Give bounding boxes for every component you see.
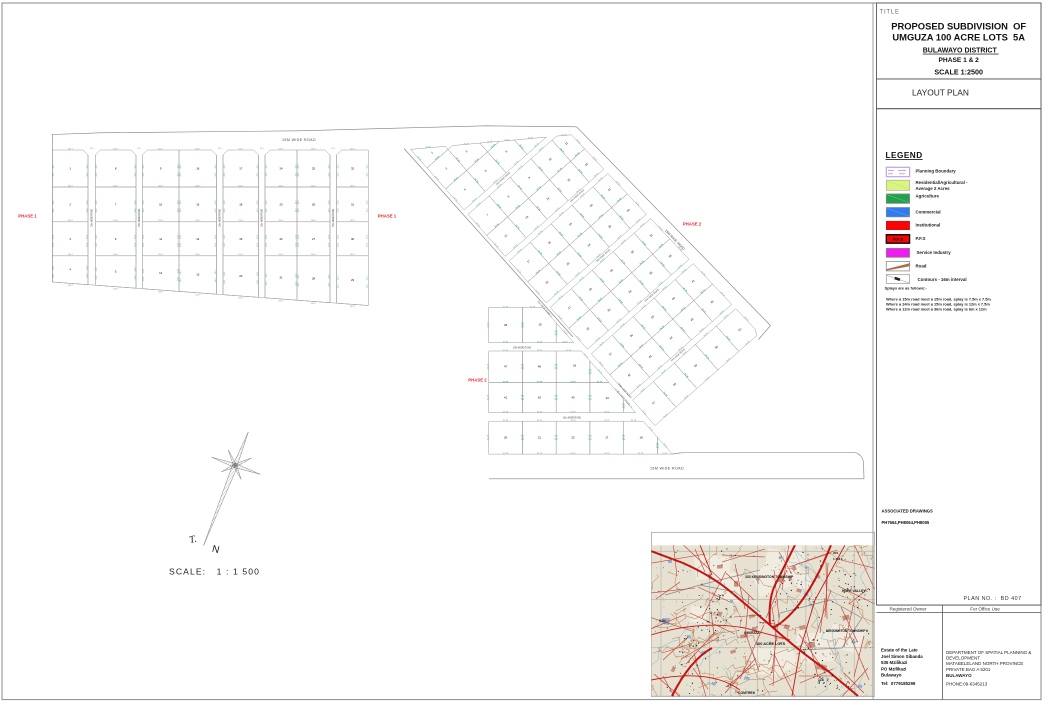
svg-text:33.78: 33.78 <box>662 453 668 455</box>
svg-text:160.7: 160.7 <box>278 148 284 150</box>
svg-text:33.78: 33.78 <box>530 306 536 308</box>
svg-text:33.78: 33.78 <box>522 434 524 440</box>
svg-text:33.78: 33.78 <box>562 342 568 344</box>
svg-text:100 ACRE LOTS: 100 ACRE LOTS <box>756 642 786 646</box>
svg-text:UMGUZA 100 ACRE LOTS 5A: UMGUZA 100 ACRE LOTS 5A <box>892 32 1025 43</box>
svg-text:33.78: 33.78 <box>570 453 576 455</box>
svg-text:33.78: 33.78 <box>537 350 543 352</box>
svg-text:DEVELOPMENT: DEVELOPMENT <box>946 656 980 661</box>
svg-text:33.78: 33.78 <box>589 434 591 440</box>
svg-text:33.78: 33.78 <box>638 453 644 455</box>
svg-text:160.7: 160.7 <box>158 185 164 187</box>
svg-text:29: 29 <box>351 278 355 282</box>
svg-text:160.7: 160.7 <box>238 298 244 300</box>
svg-text:Commercial: Commercial <box>916 209 941 214</box>
svg-text:15: 15 <box>196 202 200 206</box>
svg-text:160.7: 160.7 <box>113 220 119 222</box>
svg-text:15m WIDE ROAD: 15m WIDE ROAD <box>261 208 264 227</box>
svg-text:28: 28 <box>312 277 316 281</box>
svg-text:33.78: 33.78 <box>503 412 509 414</box>
svg-text:33.78: 33.78 <box>522 394 524 400</box>
svg-text:535 Mzilikazi: 535 Mzilikazi <box>881 660 907 665</box>
svg-text:Joel Simon Sibanda: Joel Simon Sibanda <box>881 654 923 659</box>
svg-text:160.7: 160.7 <box>195 254 201 256</box>
svg-text:19: 19 <box>239 237 243 241</box>
svg-text:14: 14 <box>196 237 200 241</box>
svg-text:10: 10 <box>159 202 163 206</box>
svg-text:33.78: 33.78 <box>566 350 572 352</box>
svg-text:33.78: 33.78 <box>589 368 591 374</box>
svg-text:11: 11 <box>159 237 162 241</box>
svg-text:PHASE 1: PHASE 1 <box>18 213 37 218</box>
svg-text:33.78: 33.78 <box>503 350 509 352</box>
svg-text:160.7: 160.7 <box>278 301 284 303</box>
svg-text:33.78: 33.78 <box>555 434 557 440</box>
svg-text:33.78: 33.78 <box>537 420 543 422</box>
svg-text:160.7: 160.7 <box>158 148 164 150</box>
svg-text:Tel: 0779185299: Tel: 0779185299 <box>881 681 916 686</box>
svg-text:KENSINGTON TOWNSHIP 6: KENSINGTON TOWNSHIP 6 <box>826 629 868 633</box>
svg-text:33.78: 33.78 <box>589 394 591 400</box>
svg-text:24: 24 <box>279 167 283 171</box>
svg-text:Where a 12m road meet a 36m ro: Where a 12m road meet a 36m road, splay … <box>886 306 987 311</box>
svg-text:22: 22 <box>571 436 575 440</box>
svg-text:33.78: 33.78 <box>503 306 509 308</box>
svg-text:22: 22 <box>279 237 283 241</box>
svg-text:160.7: 160.7 <box>238 220 244 222</box>
svg-text:PHASE 2: PHASE 2 <box>683 222 702 227</box>
svg-text:27: 27 <box>312 237 316 241</box>
svg-text:16: 16 <box>573 364 577 368</box>
svg-text:TITLE: TITLE <box>880 10 900 16</box>
svg-text:33.78: 33.78 <box>623 434 625 440</box>
svg-text:Residential/Agricultural -: Residential/Agricultural - <box>916 180 969 185</box>
svg-text:160.7: 160.7 <box>278 185 284 187</box>
svg-text:Institutional: Institutional <box>916 223 941 228</box>
svg-text:43: 43 <box>571 396 575 400</box>
svg-text:16: 16 <box>196 167 200 171</box>
svg-text:160.7: 160.7 <box>113 185 119 187</box>
svg-text:33.78: 33.78 <box>488 434 490 440</box>
svg-text:23: 23 <box>279 202 283 206</box>
svg-text:160.7: 160.7 <box>68 285 74 287</box>
svg-text:PHASE 1 & 2: PHASE 1 & 2 <box>939 57 980 64</box>
svg-text:160.7: 160.7 <box>350 254 356 256</box>
svg-text:Splays are as follows:-: Splays are as follows:- <box>885 286 928 291</box>
svg-text:160.7: 160.7 <box>350 185 356 187</box>
svg-text:33.78: 33.78 <box>503 453 509 455</box>
svg-text:42: 42 <box>538 396 542 400</box>
svg-text:25: 25 <box>312 167 316 171</box>
svg-text:30: 30 <box>351 237 355 241</box>
svg-text:P.F.S: P.F.S <box>893 237 903 242</box>
svg-text:Average 2 Acres: Average 2 Acres <box>916 186 951 191</box>
svg-text:160.7: 160.7 <box>158 254 164 256</box>
svg-text:BULAWAYO: BULAWAYO <box>946 673 972 678</box>
svg-text:33.78: 33.78 <box>604 453 610 455</box>
svg-text:160.7: 160.7 <box>311 148 317 150</box>
svg-text:160.7: 160.7 <box>158 220 164 222</box>
svg-text:33.78: 33.78 <box>488 322 490 328</box>
svg-text:160.7: 160.7 <box>238 148 244 150</box>
svg-text:160.7: 160.7 <box>311 254 317 256</box>
svg-text:PH7664,PH8064,PH8065: PH7664,PH8064,PH8065 <box>882 520 930 525</box>
svg-text:MATABELELAND NORTH PROVINCE: MATABELELAND NORTH PROVINCE <box>946 661 1023 666</box>
svg-text:19: 19 <box>538 323 542 327</box>
svg-text:15M WIDE ROAD: 15M WIDE ROAD <box>282 138 316 142</box>
svg-text:160.7: 160.7 <box>278 220 284 222</box>
svg-text:PLAN NO. : BD 407: PLAN NO. : BD 407 <box>964 596 1022 602</box>
svg-text:33.78: 33.78 <box>537 381 543 383</box>
svg-text:Contours - 16m interval: Contours - 16m interval <box>918 277 967 282</box>
svg-text:160.7: 160.7 <box>113 254 119 256</box>
svg-text:160.7: 160.7 <box>68 185 74 187</box>
svg-text:160.7: 160.7 <box>113 288 119 290</box>
svg-text:333 KENSINGTON TOWNSHIP: 333 KENSINGTON TOWNSHIP <box>745 575 794 579</box>
svg-text:26/1: 26/1 <box>833 551 839 555</box>
svg-text:160.7: 160.7 <box>311 303 317 305</box>
svg-text:PHASE 2: PHASE 2 <box>468 378 487 383</box>
svg-text:160.7: 160.7 <box>311 185 317 187</box>
svg-text:160.7: 160.7 <box>195 148 201 150</box>
svg-text:12A: 12A <box>818 678 825 682</box>
svg-text:21: 21 <box>538 436 542 440</box>
svg-text:160.7: 160.7 <box>195 294 201 296</box>
svg-text:For Office Use: For Office Use <box>970 607 1000 612</box>
svg-text:33.78: 33.78 <box>570 412 576 414</box>
svg-text:BULAWAYO DISTRICT: BULAWAYO DISTRICT <box>923 48 999 55</box>
svg-text:15m WIDE ROAD: 15m WIDE ROAD <box>219 208 222 227</box>
svg-text:SCALE 1:2500: SCALE 1:2500 <box>934 68 983 77</box>
svg-text:160.7: 160.7 <box>278 254 284 256</box>
svg-text:PROPOSED SUBDIVISION OF: PROPOSED SUBDIVISION OF <box>891 21 1026 32</box>
svg-text:Service Industry: Service Industry <box>917 250 952 255</box>
svg-text:160.7: 160.7 <box>158 292 164 294</box>
svg-text:12M WIDE ROAD: 12M WIDE ROAD <box>513 346 532 349</box>
svg-text:33.78: 33.78 <box>597 381 603 383</box>
svg-text:18: 18 <box>640 436 644 440</box>
svg-text:33.78: 33.78 <box>503 381 509 383</box>
svg-text:ASSOCIATED DRAWINGS: ASSOCIATED DRAWINGS <box>882 509 934 514</box>
svg-text:44: 44 <box>606 396 610 400</box>
svg-text:PRIVATE BAG A 5201: PRIVATE BAG A 5201 <box>946 667 991 672</box>
svg-text:1-438.8: 1-438.8 <box>833 557 843 561</box>
svg-text:COMTREK: COMTREK <box>738 691 756 695</box>
svg-text:17: 17 <box>605 436 609 440</box>
svg-text:160.7: 160.7 <box>311 220 317 222</box>
svg-text:33.78: 33.78 <box>604 412 610 414</box>
svg-text:33.78: 33.78 <box>503 420 509 422</box>
svg-text:HOPE VALLEY: HOPE VALLEY <box>842 589 866 593</box>
svg-text:33.78: 33.78 <box>537 412 543 414</box>
svg-text:33.78: 33.78 <box>623 402 625 408</box>
svg-text:160.7: 160.7 <box>238 254 244 256</box>
svg-text:33.78: 33.78 <box>555 363 557 369</box>
svg-text:26: 26 <box>312 202 316 206</box>
svg-text:LEGEND: LEGEND <box>886 151 923 160</box>
svg-text:160.7: 160.7 <box>195 220 201 222</box>
svg-text:33.78: 33.78 <box>656 442 658 448</box>
svg-text:PO Mzilikazi: PO Mzilikazi <box>881 666 906 671</box>
svg-text:33.78: 33.78 <box>604 420 610 422</box>
svg-text:21: 21 <box>279 275 283 279</box>
svg-text:160.7: 160.7 <box>238 185 244 187</box>
svg-text:15m WIDE ROAD: 15m WIDE ROAD <box>332 208 335 227</box>
svg-text:KZN: KZN <box>659 619 666 623</box>
svg-text:Planning Boundary: Planning Boundary <box>916 168 957 173</box>
svg-text:PHONE:09-6345213: PHONE:09-6345213 <box>946 681 988 686</box>
svg-text:160.7: 160.7 <box>350 220 356 222</box>
svg-text:33.78: 33.78 <box>522 322 524 328</box>
svg-text:SCALE: 1 : 1 500: SCALE: 1 : 1 500 <box>169 567 260 577</box>
svg-text:160.7: 160.7 <box>68 220 74 222</box>
svg-text:160.7: 160.7 <box>113 148 119 150</box>
svg-text:45: 45 <box>504 323 508 327</box>
svg-text:20: 20 <box>239 274 243 278</box>
svg-text:33.78: 33.78 <box>555 329 557 335</box>
svg-text:PHASE 1: PHASE 1 <box>378 213 397 218</box>
svg-text:32: 32 <box>351 167 355 171</box>
svg-text:31: 31 <box>351 202 355 206</box>
svg-text:33.78: 33.78 <box>570 420 576 422</box>
svg-text:33.78: 33.78 <box>537 342 543 344</box>
svg-text:Agriculture: Agriculture <box>916 194 940 199</box>
svg-text:33.78: 33.78 <box>631 420 637 422</box>
svg-text:160.7: 160.7 <box>68 148 74 150</box>
svg-text:Estate of the Late: Estate of the Late <box>881 648 918 653</box>
svg-text:160.7: 160.7 <box>68 254 74 256</box>
svg-text:UMGUZA: UMGUZA <box>744 631 760 635</box>
svg-text:DEPARTMENT OF SPATIAL PLANNING: DEPARTMENT OF SPATIAL PLANNING & <box>946 650 1031 655</box>
svg-text:160.7: 160.7 <box>350 148 356 150</box>
svg-text:12: 12 <box>159 271 163 275</box>
svg-text:Road: Road <box>916 264 927 269</box>
svg-text:15m WIDE ROAD: 15m WIDE ROAD <box>563 417 582 420</box>
svg-text:46: 46 <box>538 365 542 369</box>
svg-text:33.78: 33.78 <box>503 342 509 344</box>
svg-text:LAYOUT PLAN: LAYOUT PLAN <box>912 88 969 98</box>
svg-text:13: 13 <box>196 272 200 276</box>
svg-text:33.78: 33.78 <box>488 394 490 400</box>
svg-text:17: 17 <box>239 167 243 171</box>
svg-text:33.78: 33.78 <box>537 453 543 455</box>
svg-text:160.7: 160.7 <box>350 306 356 308</box>
svg-text:15m WIDE ROAD: 15m WIDE ROAD <box>91 208 94 227</box>
svg-text:33.78: 33.78 <box>522 363 524 369</box>
svg-text:18: 18 <box>239 202 243 206</box>
svg-text:15M WIDE ROAD: 15M WIDE ROAD <box>650 466 684 470</box>
svg-text:P.F.S: P.F.S <box>916 236 926 241</box>
svg-text:Bulawayo: Bulawayo <box>881 673 902 678</box>
svg-text:41: 41 <box>504 396 508 400</box>
svg-text:33.78: 33.78 <box>488 363 490 369</box>
svg-text:47: 47 <box>504 365 508 369</box>
svg-text:Registered Owner: Registered Owner <box>889 607 926 612</box>
svg-text:33.78: 33.78 <box>555 394 557 400</box>
svg-text:33.78: 33.78 <box>570 381 576 383</box>
svg-text:15m WIDE ROAD: 15m WIDE ROAD <box>138 208 141 227</box>
svg-text:160.7: 160.7 <box>195 185 201 187</box>
svg-text:20: 20 <box>504 436 508 440</box>
